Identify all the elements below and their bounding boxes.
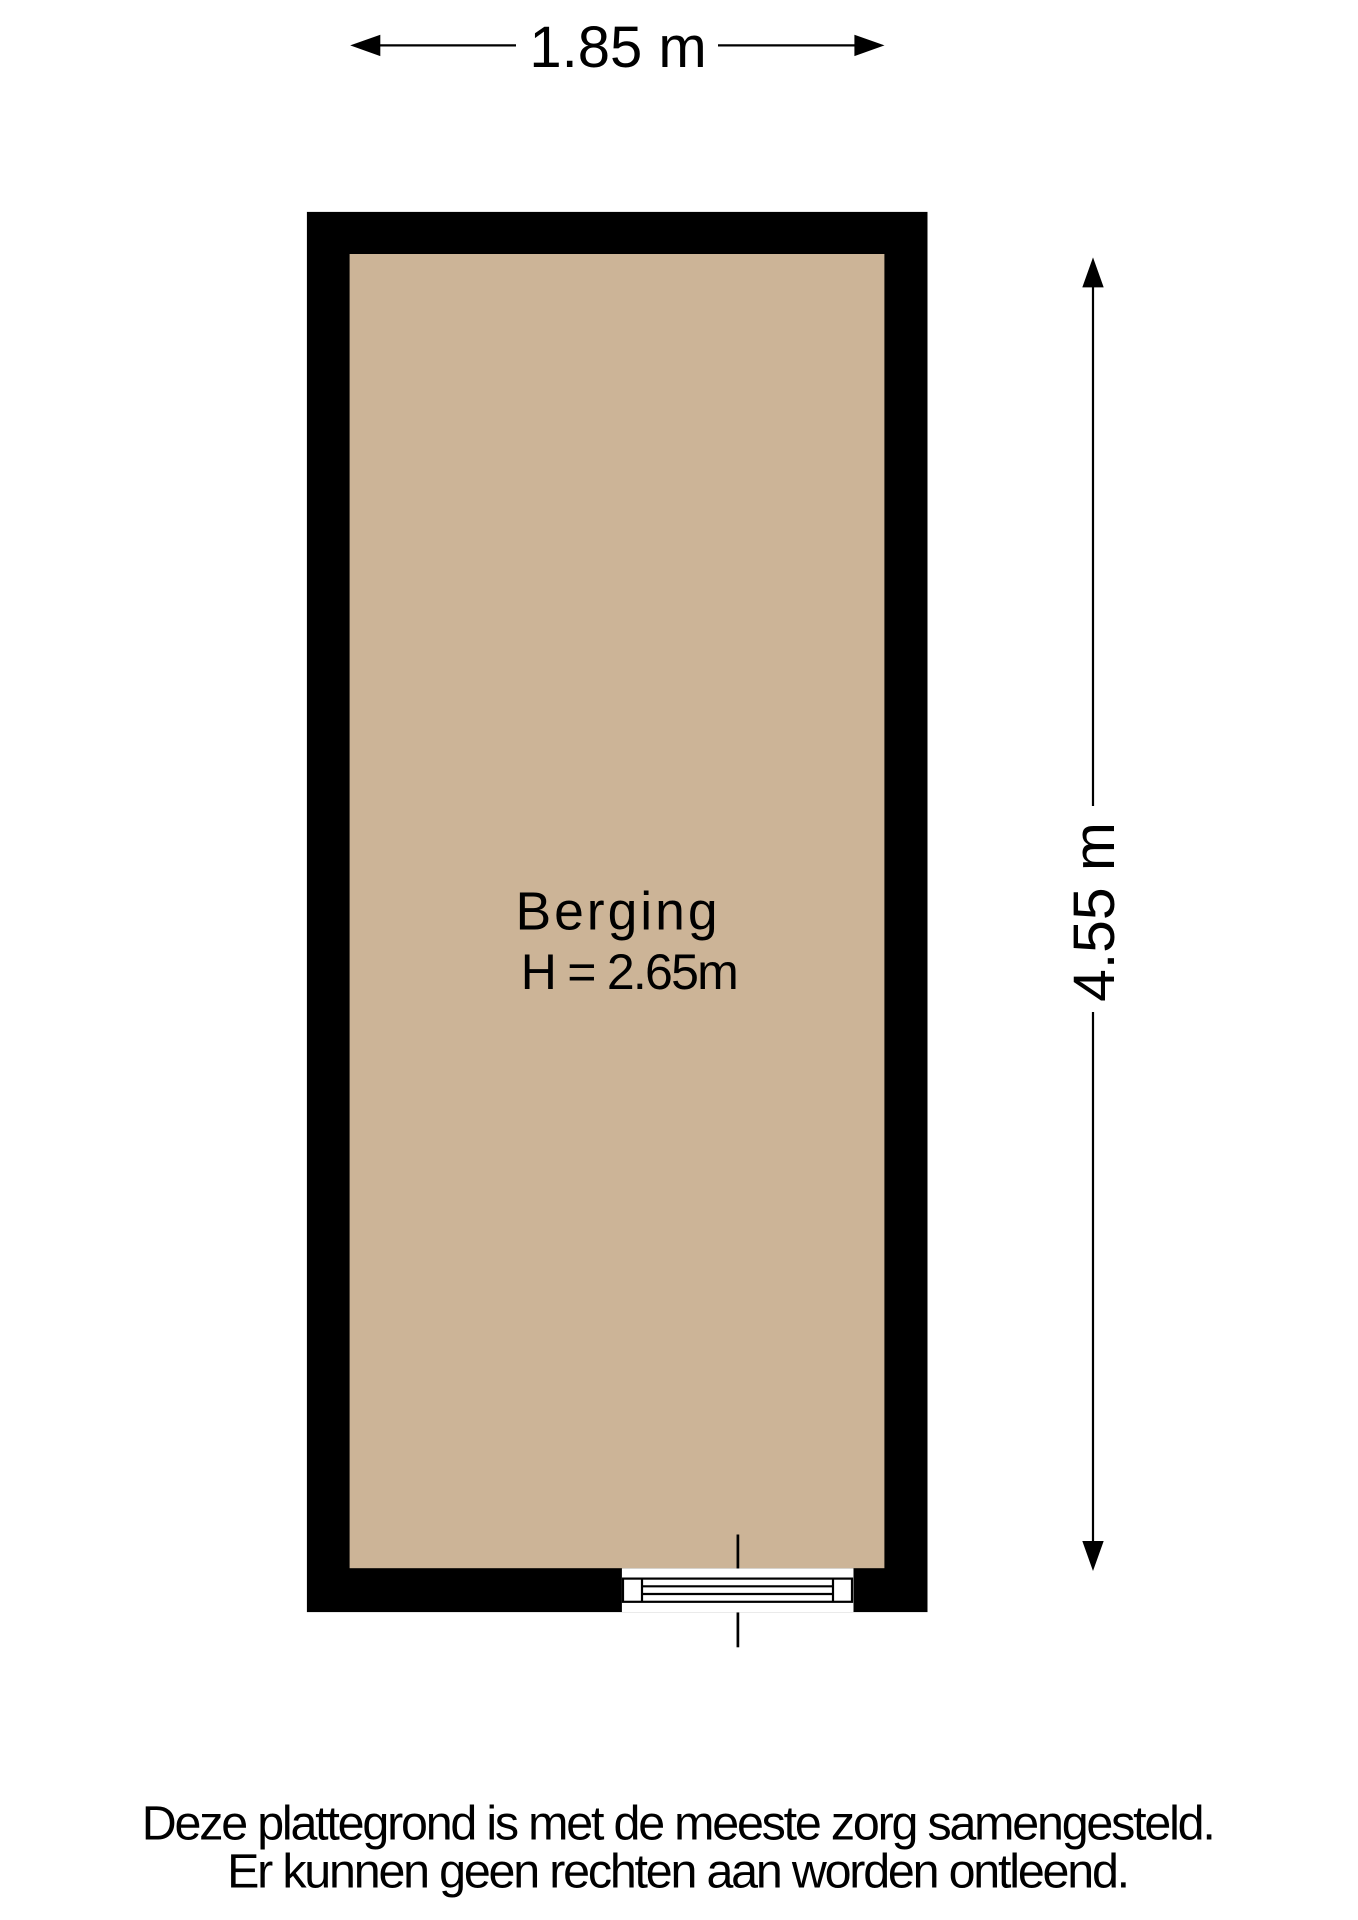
- svg-text:H = 2.65m: H = 2.65m: [521, 944, 737, 1000]
- svg-text:4.55 m: 4.55 m: [1062, 822, 1127, 1002]
- svg-text:Er kunnen geen rechten aan wor: Er kunnen geen rechten aan worden ontlee…: [227, 1844, 1128, 1898]
- svg-text:Berging: Berging: [515, 882, 720, 941]
- svg-text:1.85 m: 1.85 m: [529, 15, 706, 80]
- svg-text:Deze plattegrond is met de mee: Deze plattegrond is met de meeste zorg s…: [142, 1797, 1214, 1851]
